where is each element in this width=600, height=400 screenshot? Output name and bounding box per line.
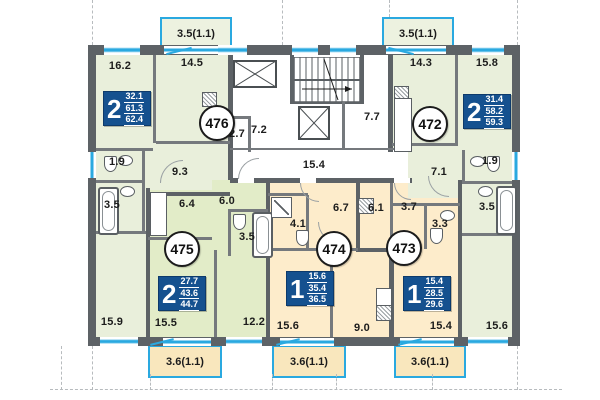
bathtub-icon xyxy=(98,187,119,235)
apartment-number-472: 472 xyxy=(412,106,448,142)
badge-473-area-total: 29.6 xyxy=(424,299,444,311)
axis-line xyxy=(272,374,273,390)
badge-474-rooms: 1 xyxy=(287,272,306,305)
badge-474-area-usable: 35.4 xyxy=(307,283,327,295)
partition xyxy=(228,209,231,256)
balcony-475-label: 3.6(1.1) xyxy=(166,356,204,368)
bathtub-icon xyxy=(252,212,273,258)
kitchen-counter xyxy=(394,98,412,152)
room-label-476-bath: 3.5 xyxy=(104,199,120,211)
axis-line xyxy=(336,374,337,390)
room-label-475-living: 15.5 xyxy=(155,317,177,329)
badge-473-area-living: 15.4 xyxy=(424,276,444,288)
partition xyxy=(462,150,465,184)
room-label-472-bath: 3.5 xyxy=(479,201,495,213)
room-label-473-bath: 3.3 xyxy=(432,218,448,230)
axis-line xyxy=(150,374,151,390)
balcony-474: 3.6(1.1) xyxy=(272,345,346,378)
badge-476-area-living: 32.1 xyxy=(124,91,144,103)
room-label-473-hall: 3.7 xyxy=(401,201,417,213)
room-label-core-lobby-right: 7.7 xyxy=(364,111,380,123)
room-label-474-bath: 4.1 xyxy=(290,218,306,230)
axis-line xyxy=(517,0,518,45)
window xyxy=(218,45,247,55)
badge-475-area-total: 44.7 xyxy=(179,299,199,311)
room-label-476-bedroom: 14.5 xyxy=(181,57,203,69)
toilet-icon xyxy=(233,214,246,230)
partition xyxy=(96,180,145,183)
badge-476-rooms: 2 xyxy=(104,92,123,125)
window xyxy=(512,152,520,180)
badge-476-area-usable: 61.3 xyxy=(124,103,144,115)
partition xyxy=(230,148,412,150)
wall xyxy=(356,180,360,252)
apartment-number-476: 476 xyxy=(199,105,235,141)
balcony-472-label: 3.5(1.1) xyxy=(399,28,437,40)
badge-475: 2 27.7 43.6 44.7 xyxy=(158,276,206,311)
badge-473: 1 15.4 28.5 29.6 xyxy=(403,276,451,311)
room-label-475-kitchen: 6.4 xyxy=(179,198,195,210)
toilet-icon xyxy=(296,230,309,246)
balcony-473-label: 3.6(1.1) xyxy=(411,356,449,368)
room-label-core-lobby-left: 7.2 xyxy=(251,124,267,136)
partition xyxy=(455,55,458,145)
room-label-core-corridor: 15.4 xyxy=(303,159,325,171)
room-label-474-hall: 6.7 xyxy=(333,202,349,214)
badge-475-area-living: 27.7 xyxy=(179,276,199,288)
room-label-472-living: 15.8 xyxy=(476,57,498,69)
room-label-475-hall: 6.0 xyxy=(219,195,235,207)
room-label-476-bedroom2: 15.9 xyxy=(101,316,123,328)
room-label-476-hall: 9.3 xyxy=(172,166,188,178)
room-label-472-wc: 1.9 xyxy=(482,155,498,167)
sink-icon xyxy=(478,186,493,197)
room-label-472-hall: 7.1 xyxy=(431,166,447,178)
badge-475-area-usable: 43.6 xyxy=(179,288,199,300)
axis-line xyxy=(517,346,518,390)
badge-472-area-usable: 58.2 xyxy=(484,106,504,118)
toilet-icon xyxy=(430,228,443,244)
room-label-473-living: 15.4 xyxy=(430,320,452,332)
elevator-shaft xyxy=(233,60,277,93)
badge-475-rooms: 2 xyxy=(159,277,178,310)
stove-icon xyxy=(376,305,392,321)
window xyxy=(88,152,96,178)
wall xyxy=(88,45,96,346)
partition xyxy=(424,203,427,249)
badge-472-rooms: 2 xyxy=(464,95,483,128)
kitchen-counter xyxy=(150,192,167,236)
badge-476-area-total: 62.4 xyxy=(124,114,144,126)
badge-473-rooms: 1 xyxy=(404,277,423,310)
axis-line xyxy=(92,0,93,45)
balcony-476-label: 3.5(1.1) xyxy=(177,28,215,40)
apartment-number-475: 475 xyxy=(164,231,200,267)
room-label-475-bath: 3.5 xyxy=(239,231,255,243)
badge-476: 2 32.1 61.3 62.4 xyxy=(103,91,151,126)
badge-472-area-total: 59.3 xyxy=(484,117,504,129)
partition xyxy=(142,148,145,234)
partition xyxy=(342,100,345,150)
axis-line xyxy=(50,389,562,390)
room-label-473-kitchen: 6.1 xyxy=(368,202,384,214)
window xyxy=(100,337,138,346)
balcony-474-label: 3.6(1.1) xyxy=(290,356,328,368)
vent-shaft-icon xyxy=(394,86,409,99)
axis-line xyxy=(61,346,62,390)
floor-plan: 3.5(1.1) 3.5(1.1) 3.6(1.1) 3.6(1.1) 3.6(… xyxy=(0,0,600,400)
window xyxy=(226,337,262,346)
room-label-472-bedroom: 14.3 xyxy=(410,57,432,69)
axis-line xyxy=(92,346,93,390)
window xyxy=(330,45,356,55)
window xyxy=(468,337,508,346)
room-label-474-living: 15.6 xyxy=(277,320,299,332)
wall xyxy=(266,180,270,337)
axis-line xyxy=(389,0,390,17)
badge-474: 1 15.6 35.4 36.5 xyxy=(286,271,334,306)
wall xyxy=(360,55,364,104)
badge-474-area-living: 15.6 xyxy=(307,271,327,283)
sink-icon xyxy=(120,186,135,197)
balcony-473: 3.6(1.1) xyxy=(394,345,466,378)
badge-472-area-living: 31.4 xyxy=(484,94,504,106)
window xyxy=(292,45,318,55)
room-label-476-living: 16.2 xyxy=(109,60,131,72)
shower-icon xyxy=(271,197,292,218)
partition xyxy=(214,250,217,337)
partition xyxy=(268,193,308,196)
badge-472: 2 31.4 58.2 59.3 xyxy=(463,94,511,129)
staircase xyxy=(294,57,360,107)
room-label-475-bedroom: 12.2 xyxy=(243,316,265,328)
room-label-474-kitchen: 9.0 xyxy=(354,322,370,334)
balcony-475: 3.6(1.1) xyxy=(148,345,222,378)
apartment-number-473: 473 xyxy=(386,230,422,266)
elevator-shaft xyxy=(298,106,330,145)
partition xyxy=(153,55,156,143)
room-label-472-bedroom2: 15.6 xyxy=(486,320,508,332)
axis-line xyxy=(282,0,283,45)
axis-line xyxy=(432,374,433,390)
room-label-476-wc: 1.9 xyxy=(109,156,125,168)
partition xyxy=(156,141,230,144)
badge-474-area-total: 36.5 xyxy=(307,294,327,306)
badge-473-area-usable: 28.5 xyxy=(424,288,444,300)
wall xyxy=(388,55,393,152)
window xyxy=(472,45,504,55)
bathtub-icon xyxy=(496,186,517,235)
apartment-number-474: 474 xyxy=(316,231,352,267)
partition xyxy=(462,181,512,184)
window xyxy=(104,45,140,55)
